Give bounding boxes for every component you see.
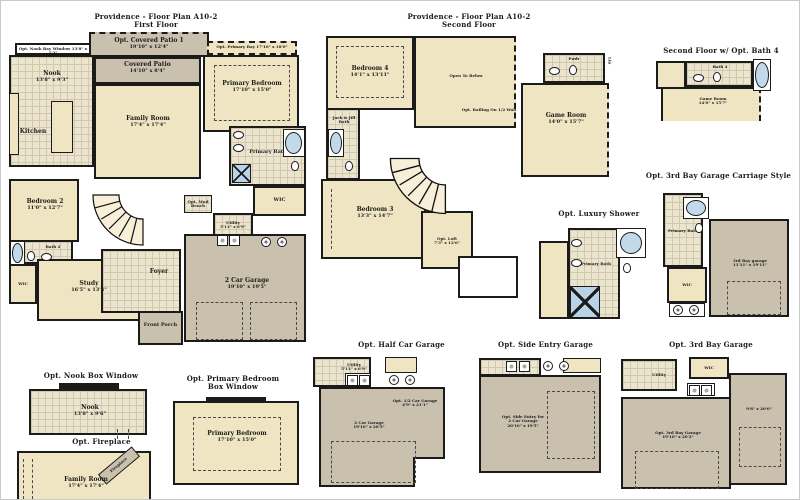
primary-shower-icon (232, 164, 251, 183)
game-room: Game Room14'0" x 15'7" (521, 83, 609, 177)
dryer-icon (229, 235, 240, 246)
carriage-tub-basin-icon (686, 200, 706, 216)
luxury-sink-icon (571, 239, 582, 247)
bath4-tub-basin-icon (755, 62, 769, 88)
opt-fireplace-title: Opt. Fireplace (49, 438, 154, 446)
primary-wic: WIC (253, 186, 306, 216)
bath2-toilet-icon (27, 251, 35, 261)
box-window-primary-bedroom: Primary Bedroom17'10" x 15'0" (173, 401, 299, 485)
jj-tub-basin-icon (330, 132, 342, 154)
primary-sink2-icon (233, 144, 244, 152)
opt-railing-note: Opt. Railing On 1/2 Wall (460, 108, 518, 112)
second-floor-title: Providence - Floor Plan A10-2 Second Flo… (389, 13, 549, 30)
bath4-toilet-icon (713, 72, 721, 82)
luxury-tub-basin-icon (620, 232, 642, 254)
half-garage-pantry (385, 357, 417, 373)
opt-luxury-shower-title: Opt. Luxury Shower (544, 210, 654, 218)
washer-icon (217, 235, 228, 246)
opt-nook-bay-window: Opt. Nook Bay Window 13'8" x 1'2" (15, 43, 91, 55)
luxury-toilet-icon (623, 263, 631, 273)
staircase-second-floor (386, 151, 452, 221)
luxury-sink2-icon (571, 259, 582, 267)
half-opener2-icon (405, 375, 415, 385)
opt-bath4-title: Second Floor w/ Opt. Bath 4 (646, 47, 796, 55)
side-opener2-icon (559, 361, 569, 371)
carriage-opener2-icon (689, 305, 699, 315)
luxury-hall (539, 241, 569, 319)
garage-opener-icon (261, 237, 271, 247)
bath2-tub-basin-icon (12, 243, 23, 263)
bath4-game-room: Game Room14'0" x 15'7" (661, 87, 761, 121)
opt-carriage-title: Opt. 3rd Bay Garage Carriage Style (641, 172, 796, 180)
bay3-garage-main: Opt. 3rd Bay Garage19'10" x 20'2" (621, 397, 731, 489)
kitchen-island (51, 101, 73, 153)
open-to-below: Open To Below Opt. Railing On 1/2 Wall (414, 36, 516, 128)
powder-sink-icon (549, 67, 560, 75)
primary-box-window-header (206, 397, 266, 403)
covered-patio: Covered Patio14'10" x 8'4" (94, 57, 201, 84)
fireplace-family-room: Family Room17'4" x 17'4" Fireplace (17, 451, 151, 500)
bath4-sink-icon (693, 74, 704, 82)
side-opener-icon (543, 361, 553, 371)
bath2-sink-icon (41, 253, 52, 261)
half-opener-icon (389, 375, 399, 385)
opt-primary-box-title: Opt. Primary Bedroom Box Window (163, 375, 303, 392)
bay3-wic: WIC (689, 357, 729, 379)
primary-sink-icon (233, 131, 244, 139)
half-garage-door (331, 441, 416, 483)
floor-plan-sheet: Providence - Floor Plan A10-2 First Floo… (0, 0, 800, 500)
opt-3rd-bay-title: Opt. 3rd Bay Garage (646, 341, 776, 349)
bath4-hall (656, 61, 686, 89)
opt-nook-box-title: Opt. Nook Box Window (26, 372, 156, 380)
bedroom-2: Bedroom 211'0" x 12'7" (9, 179, 79, 242)
jj-toilet-icon (345, 161, 353, 171)
bay3-garage-bay: 9'8" x 20'0" (729, 373, 787, 485)
nook-box-window-header (59, 383, 119, 390)
primary-tub-basin-icon (285, 132, 302, 154)
carriage-garage: 3rd Bay garage11'11" x 19'11" (709, 219, 789, 317)
half-dryer-icon (359, 375, 370, 386)
side-washer-icon (506, 361, 517, 372)
staircase-first-floor (89, 189, 149, 251)
primary-bedroom: Primary Bedroom17'10" x 15'0" (203, 55, 299, 132)
primary-toilet-icon (291, 161, 299, 171)
bedroom-4: Bedroom 414'1" x 13'11" (326, 36, 414, 110)
luxury-shower-icon (570, 286, 600, 318)
box-window-nook: Nook13'8" x 9'6" (29, 389, 147, 435)
front-porch: Front Porch (138, 311, 183, 345)
bedroom2-wic: WIC (9, 264, 37, 304)
opt-side-entry-title: Opt. Side Entry Garage (483, 341, 608, 349)
mud-bench: Opt. Mud Bench (184, 195, 212, 213)
open-roof-below (458, 256, 518, 298)
powder-toilet-icon (569, 65, 577, 75)
two-car-garage: 2 Car Garage19'10" x 19'5" (184, 234, 306, 342)
carriage-toilet-icon (695, 223, 703, 233)
garage-opener2-icon (277, 237, 287, 247)
side-entry-garage: Opt. Side Entry for2 Car Garage20'10" x … (479, 375, 601, 473)
bay3-dryer-icon (701, 385, 712, 396)
linen-label: Lin (607, 57, 611, 64)
family-room: Family Room17'4" x 17'4" (94, 84, 201, 179)
opt-primary-bay: Opt. Primary Bay 17'10" x 18'0" (207, 41, 297, 55)
opt-covered-patio: Opt. Covered Patio 119'10" x 12'4" (89, 32, 209, 57)
first-floor-title: Providence - Floor Plan A10-2 First Floo… (76, 13, 236, 30)
carriage-wic: WIC (667, 267, 707, 303)
carriage-opener-icon (673, 305, 683, 315)
bay3-washer-icon (689, 385, 700, 396)
opt-half-garage-title: Opt. Half Car Garage (339, 341, 464, 349)
kitchen-cabinets (9, 93, 19, 155)
half-washer-icon (347, 375, 358, 386)
bay3-utility: Utility (621, 359, 677, 391)
side-dryer-icon (519, 361, 530, 372)
